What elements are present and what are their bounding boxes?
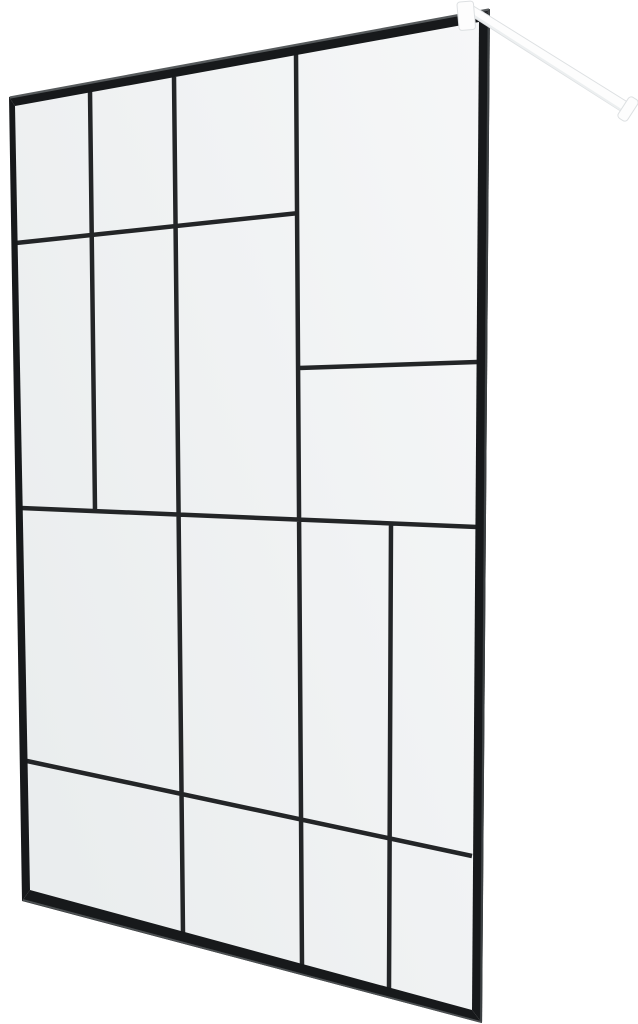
glass-clamp-bracket (457, 1, 476, 31)
product-photo (0, 0, 638, 1024)
support-arm-bar (470, 5, 632, 114)
support-arm-shadow-edge (471, 14, 626, 113)
shower-screen-image (0, 0, 638, 1024)
glass-pane (12, 14, 486, 1016)
